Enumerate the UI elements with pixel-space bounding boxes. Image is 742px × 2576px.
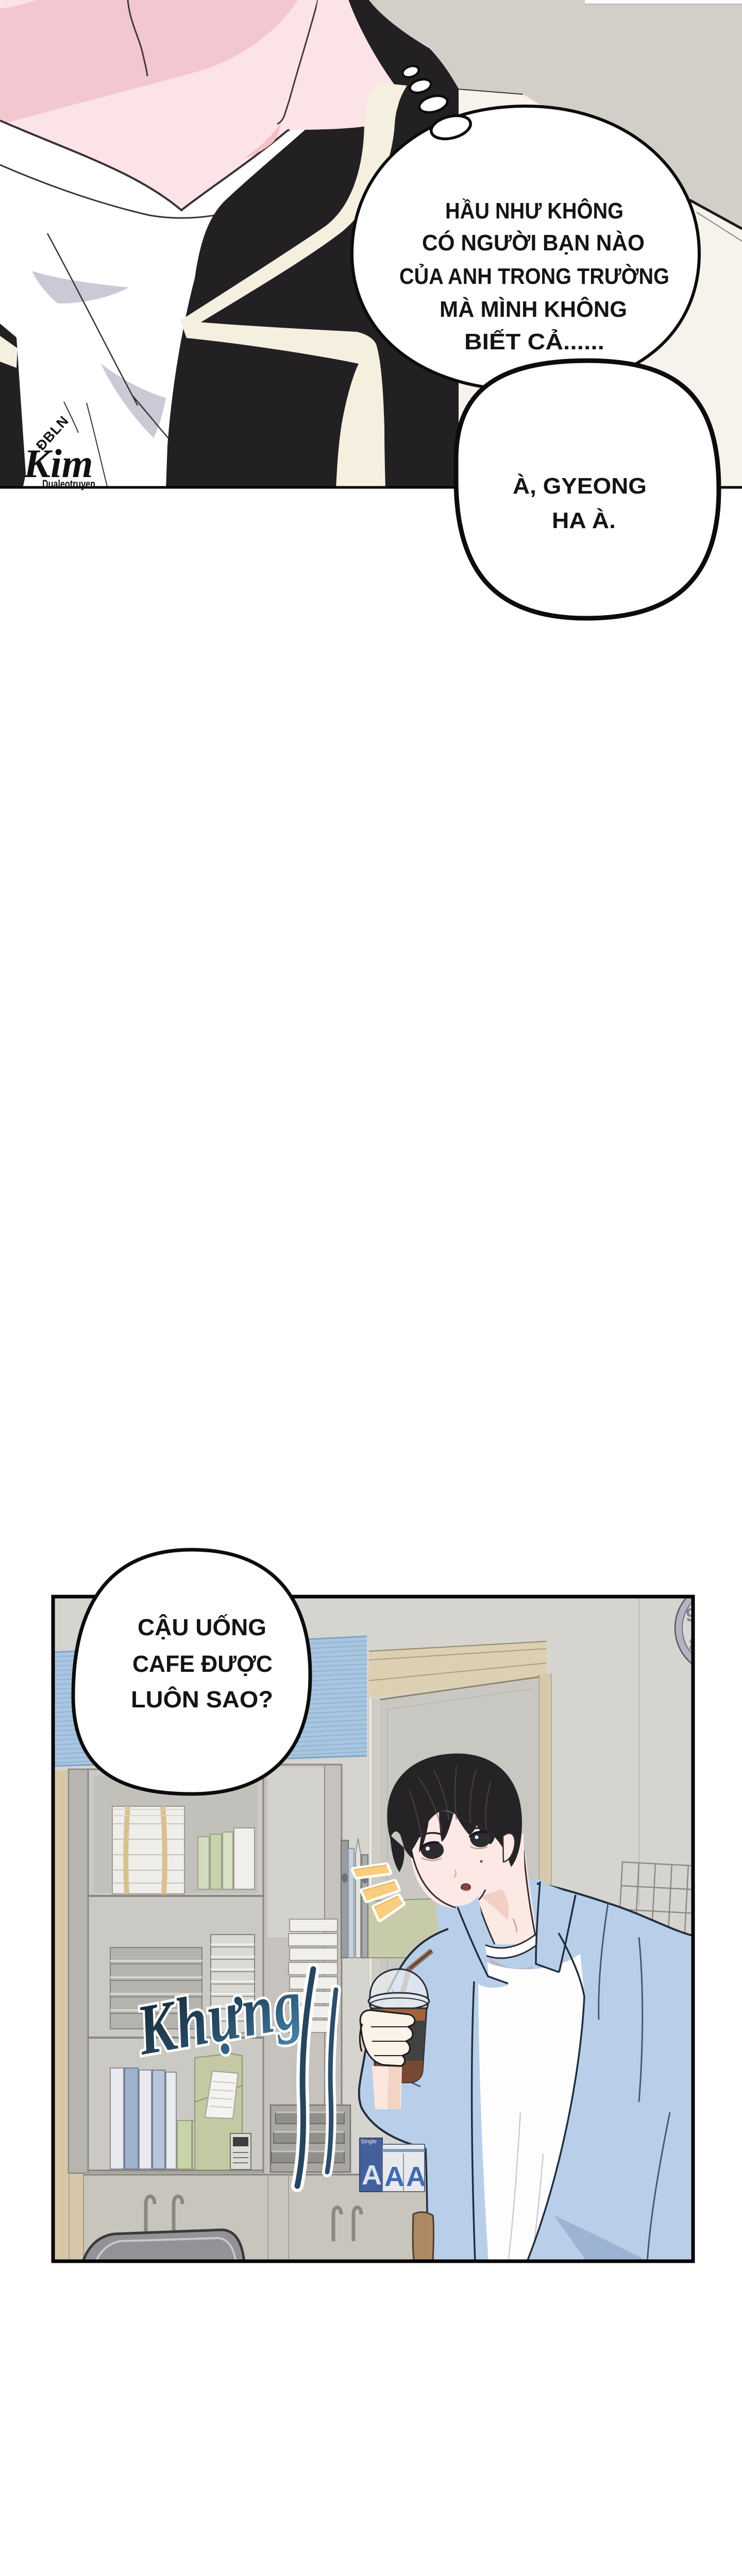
svg-text:CAFE ĐƯỢC: CAFE ĐƯỢC bbox=[132, 1651, 273, 1677]
svg-text:A: A bbox=[406, 2161, 426, 2192]
svg-text:MÀ MÌNH KHÔNG: MÀ MÌNH KHÔNG bbox=[440, 296, 627, 322]
svg-text:À, GYEONG: À, GYEONG bbox=[513, 473, 647, 499]
svg-text:HA À.: HA À. bbox=[552, 507, 616, 533]
svg-text:LUÔN SAO?: LUÔN SAO? bbox=[131, 1686, 273, 1713]
svg-text:CỦA ANH TRONG TRƯỜNG: CỦA ANH TRONG TRƯỜNG bbox=[399, 263, 669, 289]
svg-text:A: A bbox=[384, 2161, 404, 2192]
svg-text:BIẾT CẢ......: BIẾT CẢ...... bbox=[464, 329, 604, 354]
svg-text:A: A bbox=[362, 2160, 382, 2191]
svg-text:Single: Single bbox=[361, 2139, 377, 2145]
svg-text:Dualeotruyen: Dualeotruyen bbox=[42, 478, 95, 490]
svg-text:CÓ NGƯỜI BẠN NÀO: CÓ NGƯỜI BẠN NÀO bbox=[422, 230, 645, 256]
svg-text:CẬU UỐNG: CẬU UỐNG bbox=[138, 1614, 266, 1640]
svg-text:HẦU NHƯ KHÔNG: HẦU NHƯ KHÔNG bbox=[445, 197, 623, 224]
